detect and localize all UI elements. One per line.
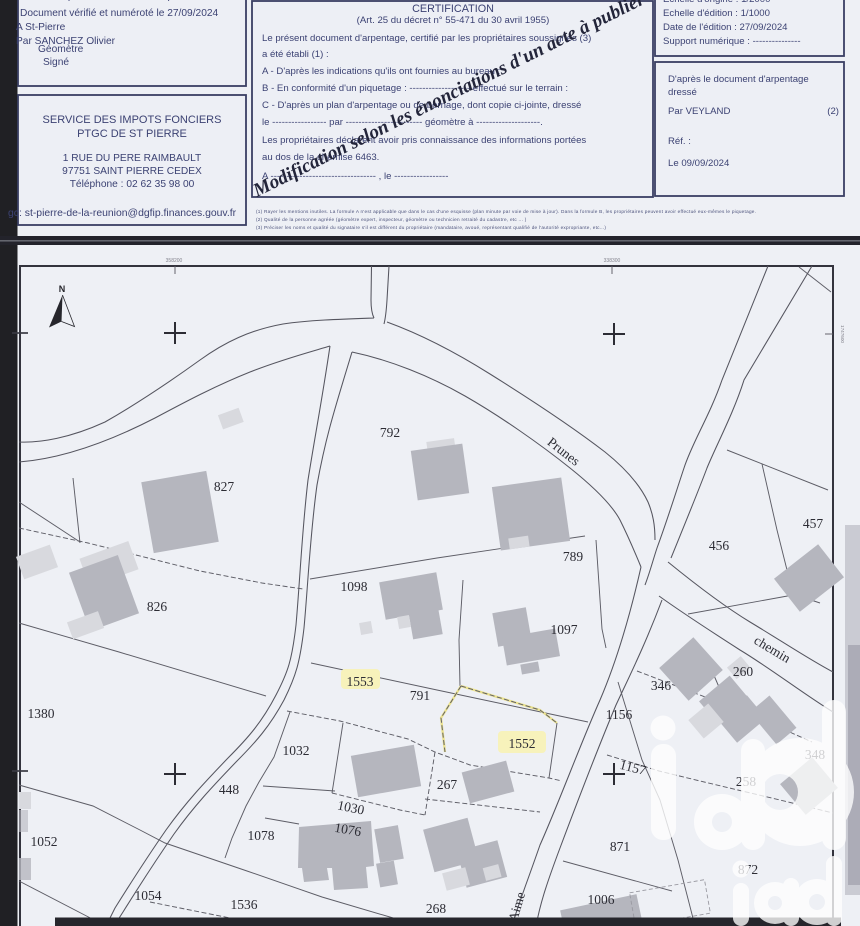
svg-text:Par VEYLAND: Par VEYLAND	[668, 106, 730, 117]
svg-text:dressé: dressé	[668, 87, 697, 98]
svg-text:456: 456	[709, 538, 730, 553]
svg-text:(1) Rayer les mentions inutile: (1) Rayer les mentions inutiles. La form…	[256, 209, 756, 214]
svg-text:B - En conformité d'un piqueta: B - En conformité d'un piquetage : -----…	[262, 83, 568, 94]
svg-text:Echelle d'origine : 1/2000: Echelle d'origine : 1/2000	[663, 0, 770, 5]
svg-text:1006: 1006	[588, 892, 615, 907]
svg-text:267: 267	[437, 777, 458, 792]
svg-text:Echelle d'édition : 1/1000: Echelle d'édition : 1/1000	[663, 8, 770, 19]
svg-text:1032: 1032	[283, 743, 310, 758]
svg-text:Réf. :: Réf. :	[668, 136, 691, 147]
svg-text:(2): (2)	[827, 106, 839, 117]
svg-text:1078: 1078	[248, 828, 275, 843]
svg-text:1553: 1553	[347, 674, 374, 689]
svg-text:Le 09/09/2024: Le 09/09/2024	[668, 158, 730, 169]
svg-text:1097: 1097	[551, 622, 578, 637]
svg-text:358200: 358200	[166, 258, 183, 264]
svg-text:97751 SAINT PIERRE CEDEX: 97751 SAINT PIERRE CEDEX	[62, 166, 202, 177]
svg-text:871: 871	[610, 839, 630, 854]
svg-text:Date de l'édition : 27/09/20: Date de l'édition : 27/09/2024	[663, 22, 788, 33]
svg-text:448: 448	[219, 782, 240, 797]
svg-text:1156: 1156	[606, 707, 633, 722]
svg-text:Support numérique : --------: Support numérique : ---------------	[663, 36, 801, 47]
svg-text:1052: 1052	[31, 834, 58, 849]
svg-text:a été établi (1) :: a été établi (1) :	[262, 49, 329, 60]
svg-text:260: 260	[733, 664, 754, 679]
svg-text:gc: st-pierre-de-la-reunion@dg: gc: st-pierre-de-la-reunion@dgfip.financ…	[8, 208, 237, 219]
svg-text:1 RUE DU PERE RAIMBAULT: 1 RUE DU PERE RAIMBAULT	[63, 153, 202, 164]
svg-text:792: 792	[380, 425, 400, 440]
svg-text:(Art. 25 du décret n° 55-471 d: (Art. 25 du décret n° 55-471 du 30 avril…	[357, 15, 550, 26]
svg-text:N: N	[59, 284, 66, 294]
svg-text:Les propriétaires déclarent av: Les propriétaires déclarent avoir pris c…	[262, 135, 586, 146]
svg-text:1536: 1536	[231, 897, 258, 912]
svg-text:1747600: 1747600	[840, 325, 845, 343]
svg-text:D'après le document d'arpentag: D'après le document d'arpentage	[668, 74, 809, 85]
svg-text:Téléphone : 02 62 35 98 00: Téléphone : 02 62 35 98 00	[70, 179, 195, 190]
svg-text:826: 826	[147, 599, 168, 614]
svg-text:1380: 1380	[28, 706, 55, 721]
svg-text:(2) Qualité de la personne agr: (2) Qualité de la personne agréée (géomè…	[256, 217, 527, 222]
svg-text:346: 346	[651, 678, 672, 693]
svg-text:457: 457	[803, 516, 824, 531]
svg-text:827: 827	[214, 479, 235, 494]
svg-text:Signé: Signé	[43, 57, 69, 68]
svg-text:CERTIFICATION: CERTIFICATION	[412, 3, 494, 15]
svg-text:789: 789	[563, 549, 584, 564]
svg-text:Document vérifié et numéroté l: Document vérifié et numéroté le 27/09/20…	[20, 8, 219, 19]
svg-text:268: 268	[426, 901, 447, 916]
svg-text:Géomètre: Géomètre	[38, 44, 84, 55]
svg-text:1552: 1552	[509, 736, 536, 751]
svg-text:A St-Pierre: A St-Pierre	[16, 22, 66, 33]
svg-text:1098: 1098	[341, 579, 368, 594]
svg-text:338300: 338300	[604, 258, 621, 264]
svg-text:SERVICE DES IMPOTS FONCIERS: SERVICE DES IMPOTS FONCIERS	[43, 114, 222, 126]
svg-text:791: 791	[410, 688, 430, 703]
svg-text:Extrait du plan cadastral dres: Extrait du plan cadastral dressé par	[22, 0, 183, 2]
svg-text:(3) Préciser les noms et quali: (3) Préciser les noms et qualité du sign…	[256, 225, 606, 230]
svg-text:PTGC DE ST PIERRE: PTGC DE ST PIERRE	[77, 128, 187, 140]
svg-text:1054: 1054	[135, 888, 162, 903]
